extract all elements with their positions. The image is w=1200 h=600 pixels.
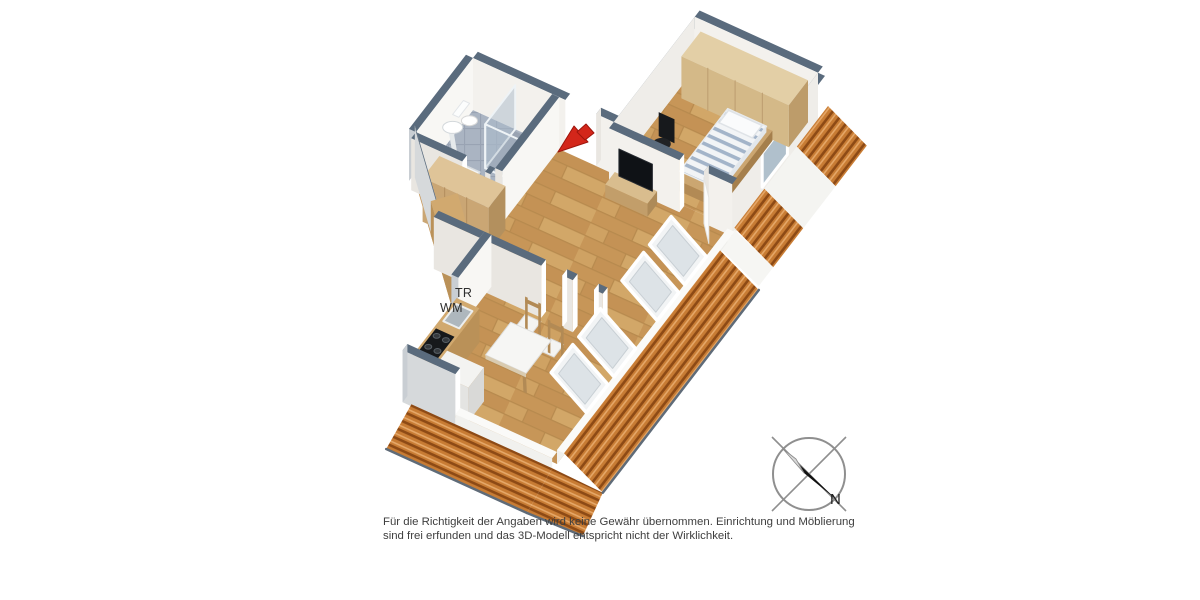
entrance-jamb (596, 108, 601, 166)
door-jamb (679, 154, 684, 212)
burner (433, 333, 440, 338)
compass-north-label: N (830, 491, 841, 508)
south-wall (403, 344, 408, 402)
sink (443, 121, 463, 133)
disclaimer-line-1: Für die Richtigkeit der Angaben wird kei… (383, 515, 855, 530)
floor-plan-3d (0, 0, 1200, 600)
dryer-label: TR (455, 286, 472, 300)
compass-needle (783, 449, 804, 473)
door-jamb (541, 260, 546, 318)
disclaimer-line-2: sind frei erfunden und das 3D-Modell ent… (383, 529, 733, 544)
door-jamb (573, 274, 578, 332)
washing-machine-label: WM (440, 301, 463, 315)
floorplan-page: TR WM N Für die Richtigkeit der Angaben … (0, 0, 1200, 600)
toilet (461, 116, 477, 126)
door-jamb (562, 269, 567, 327)
burner (425, 344, 432, 349)
burner (442, 338, 449, 343)
burner (434, 349, 441, 354)
